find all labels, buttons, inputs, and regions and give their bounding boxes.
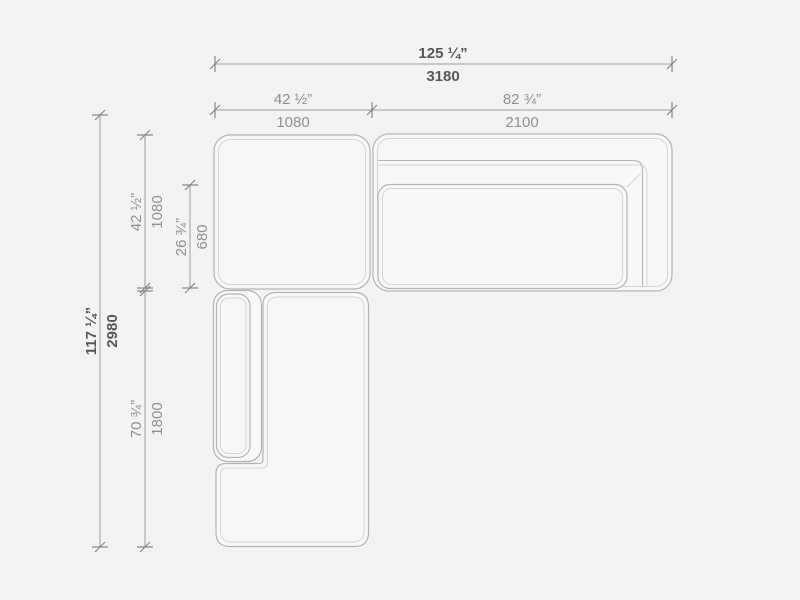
chaise-depth-imperial-label: 70 ¾” [128,400,145,438]
overall-width-metric-label: 3180 [426,68,459,85]
seat-depth-metric-label: 680 [194,224,211,249]
corner-module [214,135,370,289]
dim-corner-module-depth: 42 ½” 1080 [128,130,166,293]
dim-overall-depth: 117 ¼” 2980 [83,110,121,552]
dim-seat-depth: 26 ¾” 680 [173,180,211,293]
dim-chaise-depth: 70 ¾” 1800 [128,286,166,552]
overall-depth-metric-label: 2980 [104,314,121,347]
right-module-width-metric-label: 2100 [505,114,538,131]
sofa-dimension-drawing: 125 ¼” 3180 42 ½” 1080 82 ¾” 2100 117 ¼”… [0,0,800,600]
chaise-armrest-cushion [217,294,251,458]
corner-module-outline [214,135,370,289]
dim-overall-width: 125 ¼” 3180 [210,45,677,85]
left-module-width-imperial-label: 42 ½” [274,91,312,108]
corner-module-depth-metric-label: 1080 [149,195,166,228]
technical-drawing-page: 125 ¼” 3180 42 ½” 1080 82 ¾” 2100 117 ¼”… [0,0,800,600]
right-module-width-imperial-label: 82 ¾” [503,91,541,108]
seat-depth-imperial-label: 26 ¾” [173,218,190,256]
chaise-depth-metric-label: 1800 [149,402,166,435]
seat-cushion-outline [378,185,627,289]
dim-module-widths: 42 ½” 1080 82 ¾” 2100 [210,91,677,131]
chaise-module [214,291,369,547]
right-sofa-module [373,134,672,291]
corner-module-depth-imperial-label: 42 ½” [128,193,145,231]
left-module-width-metric-label: 1080 [276,114,309,131]
overall-depth-imperial-label: 117 ¼” [83,307,100,355]
overall-width-imperial-label: 125 ¼” [418,45,467,62]
